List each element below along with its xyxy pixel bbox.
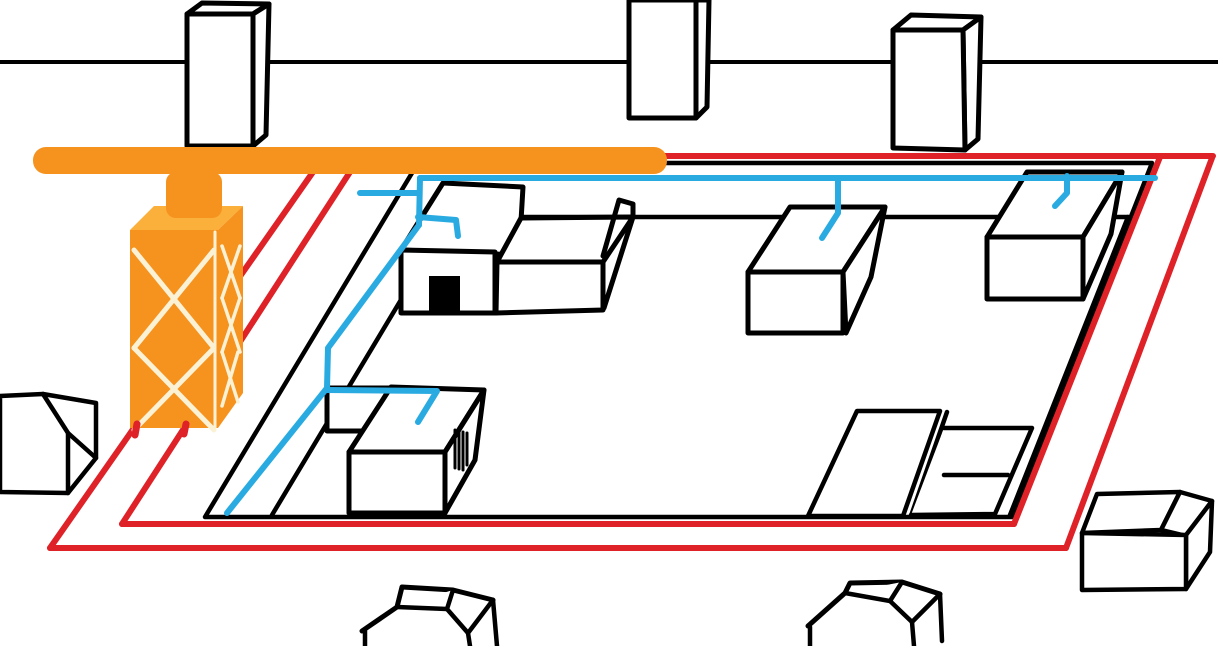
- building-3-front-face: [987, 237, 1083, 299]
- tower-right-front-face: [893, 30, 965, 150]
- house-bottom-right-chamfer: [890, 594, 940, 622]
- house-bottom-left-chamfer: [447, 600, 493, 633]
- building-4-front-face: [349, 452, 445, 513]
- building-2-front-face: [748, 272, 843, 333]
- tower-middle-side-face: [696, 0, 709, 118]
- site-drawing-svg: [0, 0, 1218, 646]
- tower-middle-front-face: [629, 0, 696, 118]
- building-1-wing-front: [496, 262, 603, 313]
- fence-anchor-dot-right: [184, 424, 186, 434]
- house-far-right-front-face: [1082, 533, 1186, 590]
- crane-mast-collar: [166, 172, 222, 218]
- house-bottom-left-front-edge: [468, 633, 470, 646]
- crane-jib: [33, 147, 667, 174]
- construction-site-sketch: [0, 0, 1218, 646]
- house-bottom-right-right-edge: [940, 594, 942, 641]
- house-bottom-right-front-edge: [912, 622, 914, 646]
- tower-left-front-face: [187, 14, 253, 146]
- house-bottom-left-rooftop: [397, 590, 453, 609]
- house-bottom-left-right-edge: [493, 600, 497, 646]
- crane-mast-side-face: [218, 206, 243, 428]
- building-1-door: [429, 276, 460, 313]
- fence-anchor-dot-left: [135, 424, 137, 435]
